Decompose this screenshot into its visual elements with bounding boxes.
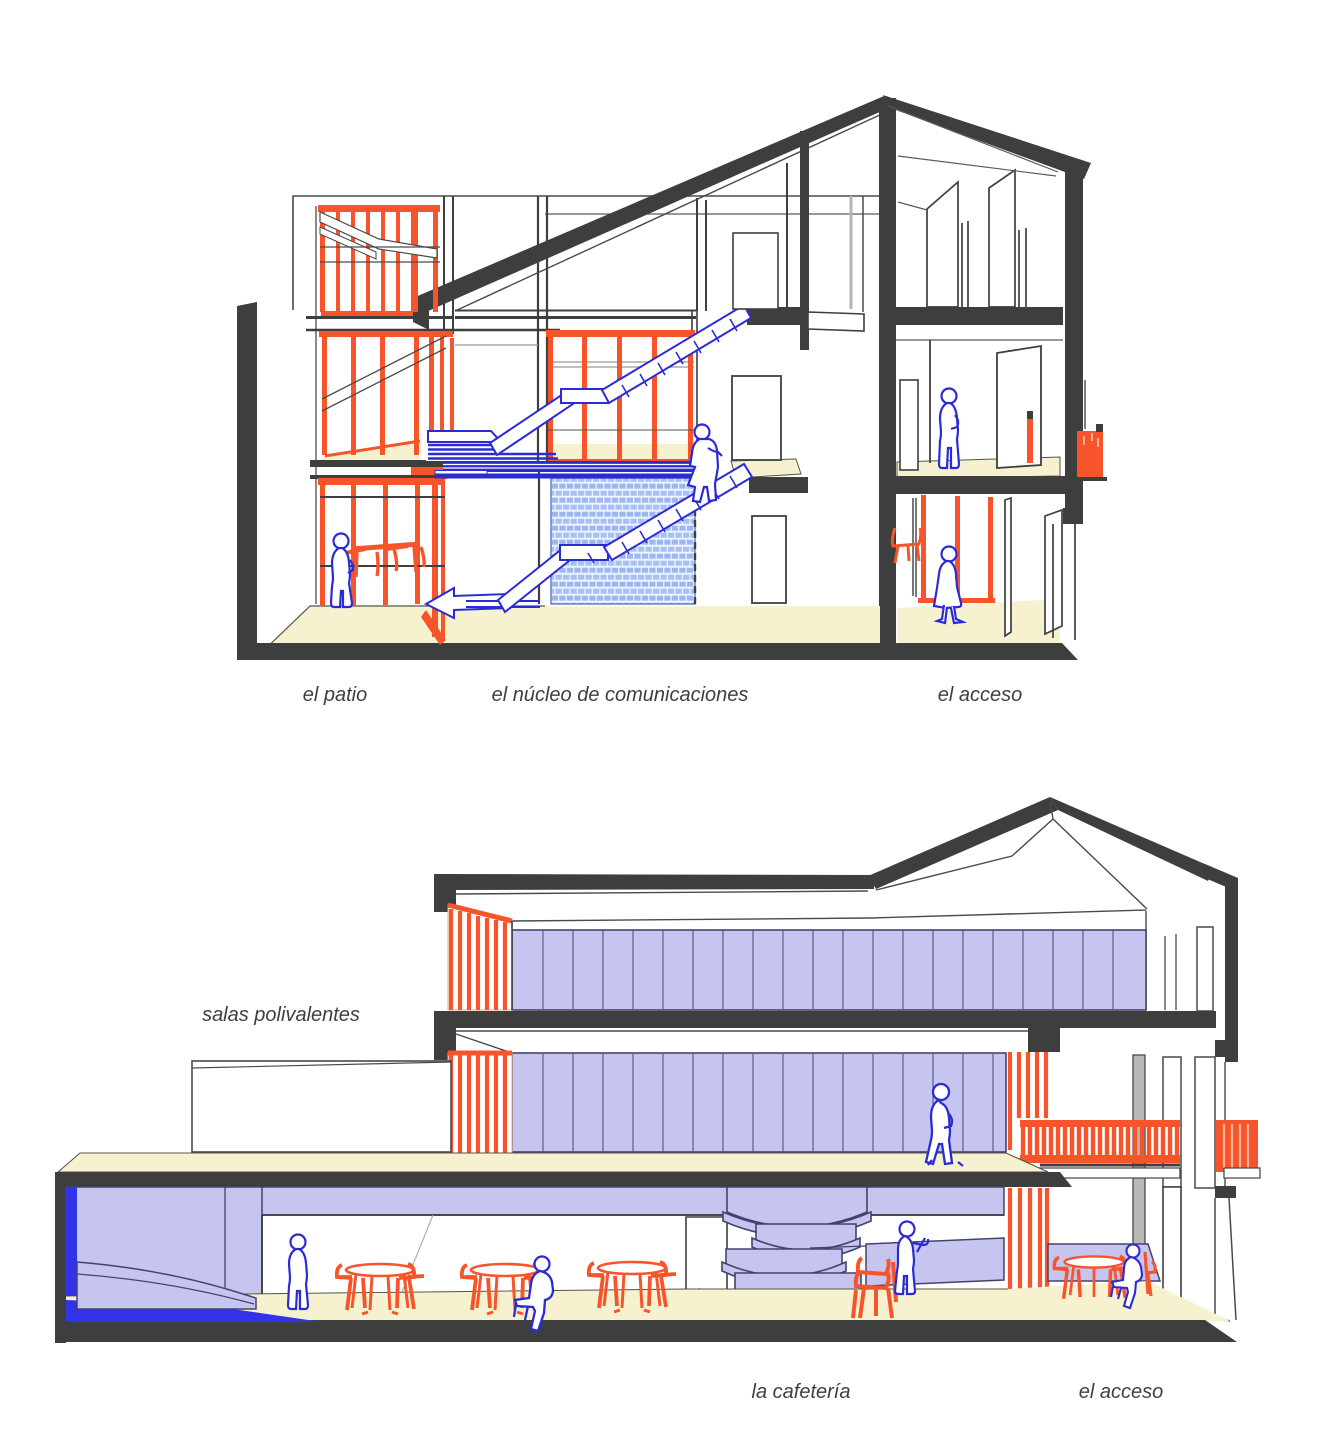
- svg-text:el acceso: el acceso: [1079, 1381, 1164, 1403]
- svg-text:el patio: el patio: [303, 684, 368, 706]
- svg-text:el acceso: el acceso: [938, 684, 1023, 706]
- svg-text:la cafetería: la cafetería: [752, 1381, 851, 1403]
- svg-text:el núcleo de comunicaciones: el núcleo de comunicaciones: [492, 684, 749, 706]
- svg-text:salas polivalentes: salas polivalentes: [202, 1004, 360, 1026]
